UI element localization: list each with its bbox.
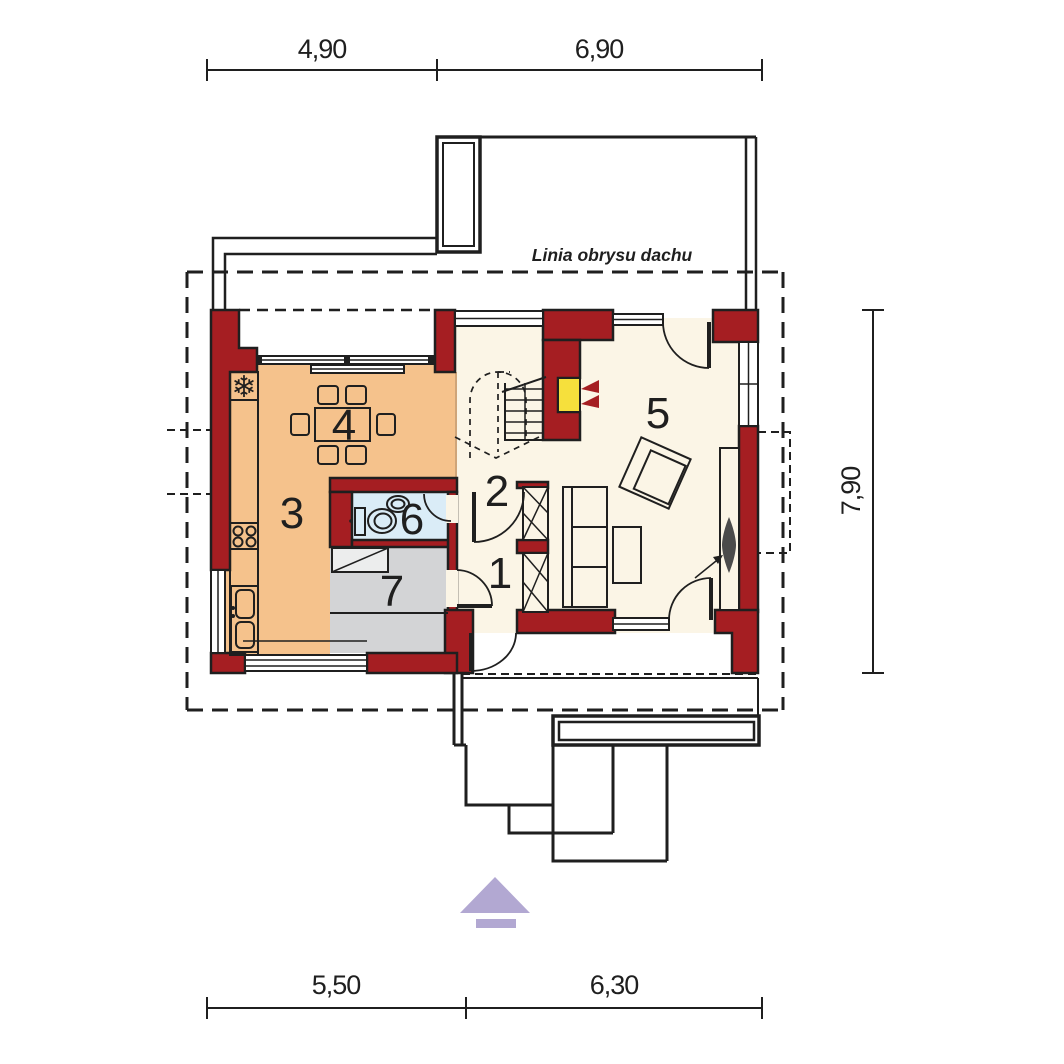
living-north-window	[613, 314, 663, 325]
living-east-window	[739, 342, 758, 426]
room-label-4: 4	[332, 401, 356, 450]
chimney	[437, 137, 480, 252]
coffee-table	[613, 527, 641, 583]
sofa	[563, 487, 607, 607]
room-label-1: 1	[488, 549, 512, 598]
room-label-7: 7	[380, 567, 404, 616]
dim-label-top-right: 6,90	[575, 34, 624, 64]
upper-storey-outline	[213, 137, 756, 310]
dim-label-top-left: 4,90	[298, 34, 347, 64]
kitchen-south-window	[245, 655, 367, 671]
dim-label-right: 7,90	[836, 467, 866, 516]
room-label-6: 6	[400, 495, 424, 544]
porch-steps	[454, 674, 759, 861]
dimension-right: 7,90	[836, 310, 884, 673]
floor-plan-canvas: ❄	[0, 0, 1064, 1064]
dim-label-bottom-right: 6,30	[590, 970, 639, 1000]
dimension-bottom: 5,50 6,30	[207, 970, 762, 1019]
hall-north-window	[455, 311, 543, 326]
dim-label-bottom-left: 5,50	[312, 970, 361, 1000]
entrance-arrow-icon	[460, 877, 530, 928]
living-south-window	[613, 618, 669, 630]
room-label-3: 3	[280, 489, 304, 538]
kitchen-west-window	[211, 570, 225, 653]
entrance-door	[471, 633, 516, 671]
snowflake-icon: ❄	[231, 370, 256, 405]
fireplace-icon	[558, 378, 580, 412]
roof-outline-label: Linia obrysu dachu	[532, 245, 693, 265]
dimension-top: 4,90 6,90	[207, 34, 762, 81]
room-label-2: 2	[485, 467, 509, 516]
hall-zone	[455, 315, 545, 490]
room-label-5: 5	[646, 389, 670, 438]
